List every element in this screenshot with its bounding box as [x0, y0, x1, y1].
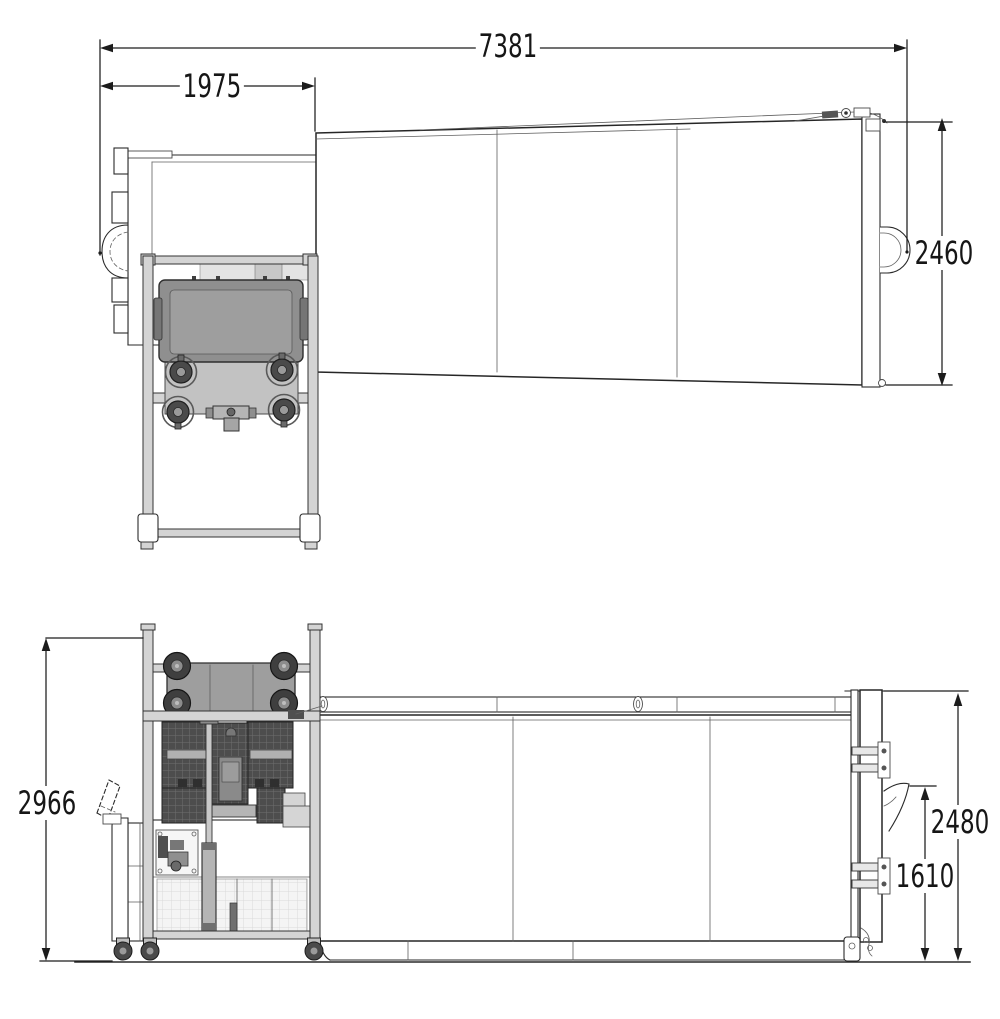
top-view	[98, 40, 952, 549]
dim-label-container-rear-height: 2480	[928, 805, 992, 839]
side-view-inverted-bin	[164, 653, 298, 717]
door-handle	[880, 227, 910, 273]
power-pack	[156, 830, 198, 875]
bin-latch	[206, 406, 256, 431]
container-skid	[320, 941, 852, 960]
frame-caster	[305, 938, 323, 960]
dim-label-bin-lifter-length: 1975	[180, 69, 244, 103]
control-panel-tilted	[97, 780, 121, 824]
technical-drawing	[0, 0, 1000, 1019]
frame-caster	[141, 938, 159, 960]
side-view-container	[318, 690, 909, 961]
bin-caster	[267, 353, 298, 386]
bin-caster	[166, 355, 197, 388]
dim-label-overall-length: 7381	[476, 29, 540, 63]
side-view-hopper	[162, 722, 310, 827]
control-pedestal	[112, 818, 128, 941]
bin-caster	[163, 397, 194, 430]
side-view	[40, 624, 970, 962]
door-hook-bracket	[884, 783, 909, 831]
bin-wheel	[164, 653, 191, 680]
dim-label-container-height-top: 2460	[912, 236, 976, 270]
dim-label-overall-height: 2966	[15, 786, 79, 820]
top-view-rear-door	[862, 114, 910, 387]
top-view-wheelie-bin	[153, 276, 308, 431]
machine-wheel	[114, 938, 132, 960]
container-roof	[316, 119, 862, 385]
dim-label-hook-height: 1610	[893, 859, 957, 893]
side-view-rear-door	[844, 690, 909, 961]
drawing-canvas: 7381 1975 2460 2966 2480 1610	[0, 0, 1000, 1019]
container-body	[318, 715, 852, 941]
bin-wheel	[271, 653, 298, 680]
top-view-container	[316, 108, 910, 387]
bin-caster	[269, 395, 300, 428]
